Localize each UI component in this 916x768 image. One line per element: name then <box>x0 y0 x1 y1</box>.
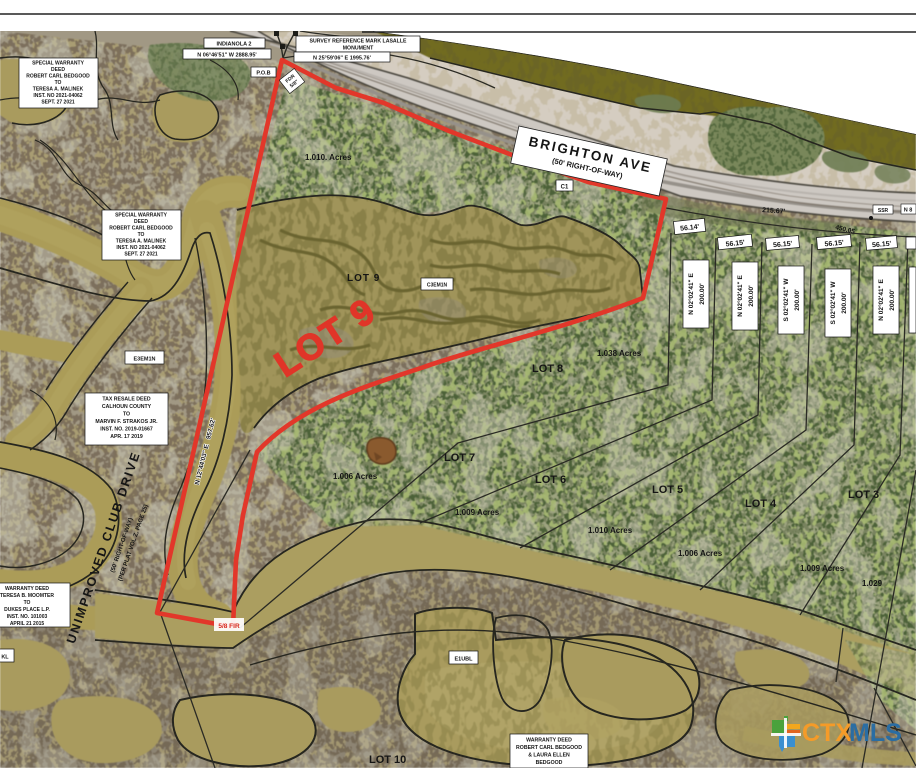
svg-text:TERESA A. MALINEK: TERESA A. MALINEK <box>116 239 167 245</box>
svg-text:SSR: SSR <box>878 208 889 214</box>
svg-text:DEED: DEED <box>134 219 148 225</box>
svg-text:TO: TO <box>55 80 62 86</box>
svg-text:BEDGOOD: BEDGOOD <box>536 760 563 766</box>
svg-text:LOT 9: LOT 9 <box>347 273 380 284</box>
svg-text:S 02°02'41" W: S 02°02'41" W <box>829 281 837 325</box>
svg-text:TO: TO <box>123 412 130 418</box>
svg-text:200.00': 200.00' <box>699 283 706 305</box>
svg-text:ROBERT CARL BEDGOOD: ROBERT CARL BEDGOOD <box>109 226 173 232</box>
svg-text:1.010. Acres: 1.010. Acres <box>305 153 352 162</box>
svg-text:1.009 Acres: 1.009 Acres <box>455 508 500 517</box>
svg-text:SURVEY REFERENCE MARK LASALLE: SURVEY REFERENCE MARK LASALLE <box>310 39 407 45</box>
svg-text:C3EM1N: C3EM1N <box>427 283 448 289</box>
svg-text:200.00': 200.00' <box>748 285 755 307</box>
svg-text:N 06°46'51" W 2888.95': N 06°46'51" W 2888.95' <box>197 53 257 59</box>
svg-text:SEPT. 27 2021: SEPT. 27 2021 <box>124 252 158 258</box>
svg-text:LOT 7: LOT 7 <box>444 452 475 464</box>
svg-text:LOT 3: LOT 3 <box>848 489 879 501</box>
svg-text:N 02°02'41" E: N 02°02'41" E <box>687 273 695 315</box>
svg-text:SPECIAL WARRANTY: SPECIAL WARRANTY <box>115 213 168 219</box>
svg-text:200.00': 200.00' <box>841 292 848 314</box>
svg-text:WARRANTY DEED: WARRANTY DEED <box>5 586 49 592</box>
svg-text:1.006 Acres: 1.006 Acres <box>678 549 723 558</box>
svg-text:KL: KL <box>1 655 9 661</box>
svg-text:MARVIN F. STRAKOS JR.: MARVIN F. STRAKOS JR. <box>95 419 158 425</box>
svg-text:CALHOUN COUNTY: CALHOUN COUNTY <box>102 404 152 410</box>
svg-text:APR. 17 2019: APR. 17 2019 <box>110 434 143 440</box>
svg-text:TERESA B. MOOMTER: TERESA B. MOOMTER <box>0 593 54 599</box>
svg-text:SEPT. 27 2021: SEPT. 27 2021 <box>41 100 75 106</box>
svg-text:N 02°02'41" E: N 02°02'41" E <box>736 275 744 317</box>
svg-text:INDIANOLA 2: INDIANOLA 2 <box>217 42 252 48</box>
svg-text:1.038 Acres: 1.038 Acres <box>597 349 642 358</box>
svg-text:LOT 6: LOT 6 <box>535 474 566 486</box>
svg-text:E3EM1N: E3EM1N <box>133 357 155 363</box>
svg-text:1.009 Acres: 1.009 Acres <box>800 564 845 573</box>
svg-text:INST. NO 2021-04062: INST. NO 2021-04062 <box>116 245 165 251</box>
svg-text:1.006 Acres: 1.006 Acres <box>333 472 378 481</box>
svg-text:5/8 FIR: 5/8 FIR <box>218 623 240 630</box>
svg-text:TERESA A. MALINEK: TERESA A. MALINEK <box>33 87 84 93</box>
svg-text:LOT 4: LOT 4 <box>745 498 777 510</box>
svg-text:& LAURA ELLEN: & LAURA ELLEN <box>528 753 570 759</box>
svg-text:TO: TO <box>24 600 31 606</box>
svg-text:1.010 Acres: 1.010 Acres <box>588 526 633 535</box>
svg-text:1.029: 1.029 <box>862 579 883 588</box>
svg-text:APRIL 21 2015: APRIL 21 2015 <box>10 621 45 627</box>
svg-text:TAX RESALE DEED: TAX RESALE DEED <box>102 397 151 403</box>
svg-text:N 25°59'06" E 1995.76': N 25°59'06" E 1995.76' <box>313 56 372 62</box>
svg-text:N 8: N 8 <box>904 208 913 214</box>
svg-text:INST. NO. 2019-01667: INST. NO. 2019-01667 <box>100 427 153 433</box>
svg-text:INST. NO 2021-04062: INST. NO 2021-04062 <box>33 93 82 99</box>
svg-text:200.00': 200.00' <box>794 289 801 311</box>
svg-text:200.00': 200.00' <box>889 289 896 311</box>
svg-text:LOT 8: LOT 8 <box>532 363 563 375</box>
svg-text:MLS: MLS <box>849 719 902 747</box>
svg-text:C1: C1 <box>561 185 569 191</box>
svg-text:ROBERT CARL BEDGOOD: ROBERT CARL BEDGOOD <box>26 74 90 80</box>
svg-text:TO: TO <box>138 232 145 238</box>
svg-text:P.O.B: P.O.B <box>256 71 270 77</box>
svg-text:S 02°02'41" W: S 02°02'41" W <box>782 278 790 322</box>
svg-text:DEED: DEED <box>51 67 65 73</box>
svg-text:LOT 5: LOT 5 <box>652 484 683 496</box>
svg-text:MONUMENT: MONUMENT <box>343 46 374 52</box>
svg-text:ROBERT CARL BEDGOOD: ROBERT CARL BEDGOOD <box>516 745 582 751</box>
svg-text:DUKES PLACE L.P.: DUKES PLACE L.P. <box>4 607 50 613</box>
svg-text:N 02°02'41" E: N 02°02'41" E <box>877 279 885 321</box>
svg-text:INST. NO. 101003: INST. NO. 101003 <box>7 614 48 620</box>
svg-text:E1UBL: E1UBL <box>454 657 473 663</box>
svg-text:SPECIAL WARRANTY: SPECIAL WARRANTY <box>32 61 85 67</box>
svg-text:CTX: CTX <box>802 719 852 747</box>
svg-text:WARRANTY DEED: WARRANTY DEED <box>526 738 572 744</box>
svg-text:LOT 10: LOT 10 <box>369 754 406 766</box>
